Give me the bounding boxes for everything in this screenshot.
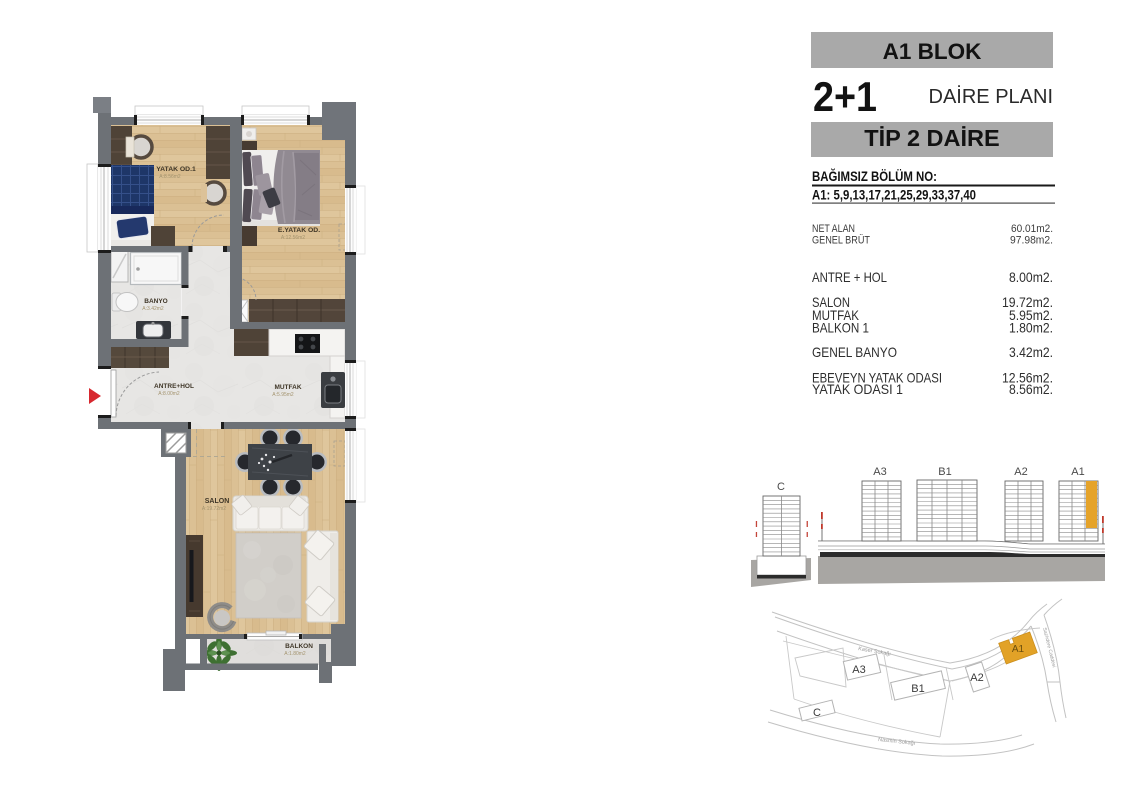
svg-text:B1: B1 [911,683,924,695]
svg-text:A:12.56m2: A:12.56m2 [281,235,305,241]
svg-text:A2: A2 [1014,466,1027,478]
svg-text:YATAK ODASI 1: YATAK ODASI 1 [812,381,903,397]
svg-text:A:1.80m2: A:1.80m2 [284,651,306,657]
svg-text:BANYO: BANYO [144,298,167,305]
svg-text:GENEL BRÜT: GENEL BRÜT [812,235,870,247]
svg-text:ANTRE + HOL: ANTRE + HOL [812,269,887,285]
svg-text:1.80m2.: 1.80m2. [1009,320,1053,336]
svg-text:A:5.95m2: A:5.95m2 [272,392,294,398]
svg-text:60.01m2.: 60.01m2. [1011,223,1053,235]
svg-text:97.98m2.: 97.98m2. [1010,235,1053,247]
svg-text:A2: A2 [970,672,983,684]
svg-text:TİP 2 DAİRE: TİP 2 DAİRE [864,125,999,151]
svg-text:A:8.56m2: A:8.56m2 [159,174,181,180]
svg-text:A:19.72m2: A:19.72m2 [202,506,226,512]
svg-text:NET ALAN: NET ALAN [812,223,855,235]
svg-text:A1: A1 [1012,644,1025,655]
svg-text:C: C [777,481,785,493]
svg-text:DAİRE PLANI: DAİRE PLANI [929,85,1053,108]
svg-text:A1: 5,9,13,17,21,25,29,33,37,4: A1: 5,9,13,17,21,25,29,33,37,40 [812,188,976,203]
svg-text:YATAK OD.1: YATAK OD.1 [156,166,196,173]
svg-text:8.00m2.: 8.00m2. [1009,269,1053,285]
svg-text:ANTRE+HOL: ANTRE+HOL [154,383,194,390]
svg-text:SALON: SALON [205,498,230,505]
svg-text:BAĞIMSIZ BÖLÜM NO:: BAĞIMSIZ BÖLÜM NO: [812,169,937,184]
svg-text:BALKON 1: BALKON 1 [812,320,869,336]
svg-text:B1: B1 [938,466,951,478]
svg-text:E.YATAK OD.: E.YATAK OD. [278,227,320,234]
svg-text:GENEL BANYO: GENEL BANYO [812,344,897,360]
svg-text:3.42m2.: 3.42m2. [1009,344,1053,360]
svg-text:A:8.00m2: A:8.00m2 [158,391,180,397]
svg-text:A1 BLOK: A1 BLOK [883,39,983,64]
svg-text:A1: A1 [1071,466,1084,478]
svg-text:BALKON: BALKON [285,643,313,650]
svg-text:8.56m2.: 8.56m2. [1009,381,1053,397]
svg-text:A3: A3 [852,664,865,676]
svg-text:MUTFAK: MUTFAK [274,384,301,391]
svg-text:A:3.42m2: A:3.42m2 [142,306,164,312]
svg-text:C: C [813,707,821,719]
svg-text:A3: A3 [873,466,886,478]
svg-text:2+1: 2+1 [813,73,877,120]
